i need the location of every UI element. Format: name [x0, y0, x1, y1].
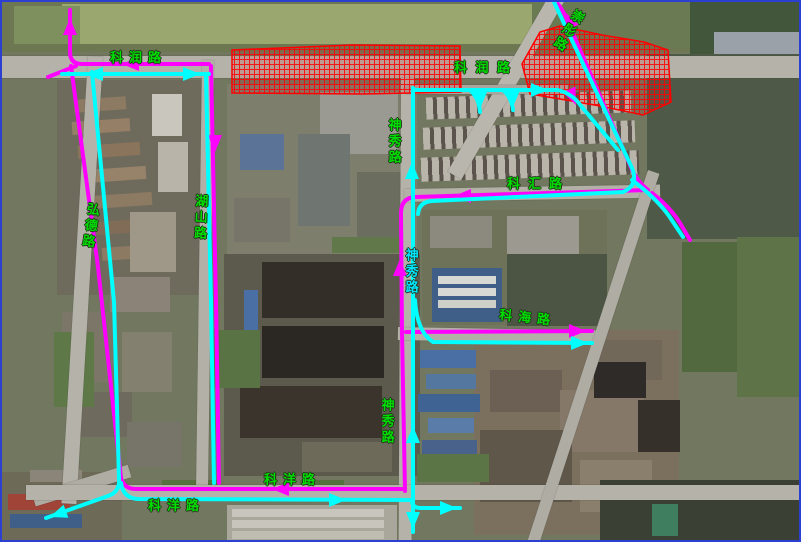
- road-label: 科洋路: [148, 500, 205, 514]
- road-label: 崇彤路: [548, 6, 585, 54]
- road-label: 神秀路: [379, 398, 393, 446]
- road-label: 科洋路: [264, 474, 321, 488]
- road-label: 科润路: [110, 52, 167, 66]
- road-label: 神秀路: [403, 248, 417, 296]
- road-label: 科汇路: [507, 178, 570, 192]
- satellite-map: 科润路科 润 路崇彤路弘德路湖山路神秀路神秀路神秀路科汇路科海路科洋路科洋路: [2, 2, 799, 540]
- road-labels-layer: 科润路科 润 路崇彤路弘德路湖山路神秀路神秀路神秀路科汇路科海路科洋路科洋路: [2, 2, 799, 540]
- road-label: 科海路: [498, 309, 556, 329]
- road-label: 科 润 路: [454, 62, 512, 76]
- map-frame: 科润路科 润 路崇彤路弘德路湖山路神秀路神秀路神秀路科汇路科海路科洋路科洋路: [0, 0, 801, 542]
- road-label: 弘德路: [79, 201, 99, 250]
- road-label: 神秀路: [386, 118, 400, 166]
- road-label: 湖山路: [191, 194, 206, 242]
